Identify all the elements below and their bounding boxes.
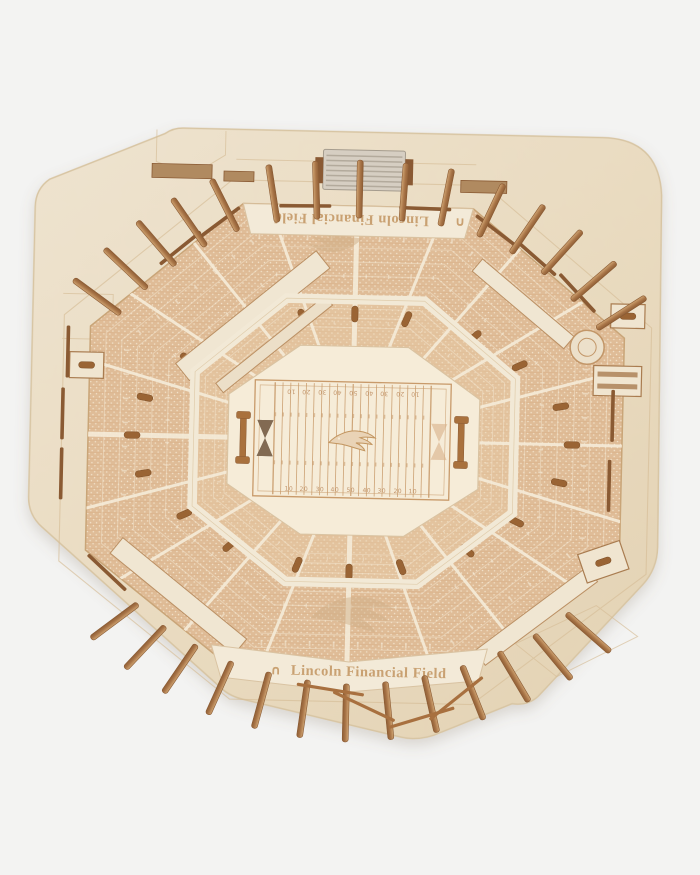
svg-text:40: 40 (333, 389, 342, 396)
west-gate-structure (69, 352, 104, 379)
svg-text:20: 20 (393, 488, 402, 495)
svg-text:30: 30 (380, 390, 389, 397)
stadium-model-photo: 10 20 30 40 50 40 30 20 10 10 20 30 40 5… (0, 0, 700, 875)
svg-text:50: 50 (349, 389, 358, 396)
svg-text:30: 30 (318, 388, 327, 395)
svg-text:10: 10 (287, 388, 296, 395)
svg-text:10: 10 (284, 485, 293, 492)
svg-text:30: 30 (315, 486, 324, 493)
svg-text:20: 20 (299, 486, 308, 493)
svg-text:40: 40 (330, 487, 339, 494)
svg-text:30: 30 (377, 488, 386, 495)
svg-text:40: 40 (362, 487, 371, 494)
svg-text:10: 10 (411, 390, 420, 397)
brand-mark-top: ∩ (455, 214, 466, 229)
svg-text:20: 20 (302, 388, 311, 395)
product-photo: 10 20 30 40 50 40 30 20 10 10 20 30 40 5… (0, 0, 700, 875)
svg-text:40: 40 (365, 389, 374, 396)
brand-mark-bottom: ∩ (270, 663, 281, 678)
svg-text:10: 10 (408, 488, 417, 495)
scoreboard (315, 149, 414, 191)
svg-text:20: 20 (396, 390, 405, 397)
svg-text:50: 50 (346, 487, 355, 494)
